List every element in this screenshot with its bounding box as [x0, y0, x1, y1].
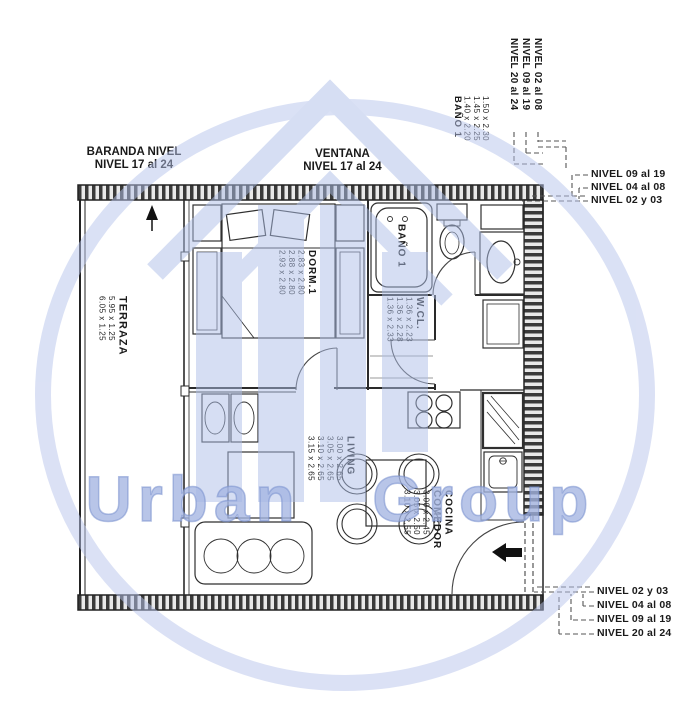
bathroom-fixtures [371, 203, 524, 294]
room-dim: 2.88 x 2.80 [286, 250, 295, 345]
baranda-line2: NIVEL 17 al 24 [78, 159, 190, 172]
room-dim: 3.05 x 2.50 [411, 490, 420, 602]
level-ref-bottom-4: NIVEL 20 al 24 [597, 627, 671, 639]
armchair-left [202, 394, 229, 442]
living-label: LIVING 3.00 x 2.65 3.05 x 2.65 3.10 x 2.… [306, 436, 355, 541]
level-ref-right-3: NIVEL 02 y 03 [591, 194, 662, 206]
room-dim: 1.50 x 2.30 [481, 96, 490, 191]
room-dim: 3.10 x 2.65 [315, 436, 324, 541]
nightstand-right [336, 205, 364, 241]
level-ref-top-3: NIVEL 02 al 08 [532, 38, 543, 133]
bathroom-shelf [481, 205, 523, 229]
kitchen-sink [484, 452, 522, 492]
kitchen-cabinet [483, 300, 523, 348]
level-ref-bottom-2: NIVEL 04 al 08 [597, 599, 671, 611]
dorm1-label: DORM.1 2.83 x 2.80 2.88 x 2.80 2.93 x 2.… [277, 250, 317, 345]
bano1-tub-label: BAÑO 1 [395, 224, 407, 288]
room-dim: 1.36 x 2.28 [394, 297, 403, 387]
room-name-line1: COCINA [442, 490, 454, 602]
armchair-right [231, 394, 258, 442]
room-dim: 3.00 x 2.45 [421, 490, 430, 602]
bano1-callout-label: BAÑO 1 1.40 x 2.20 1.45 x 2.25 1.50 x 2.… [451, 96, 490, 191]
level-ref-top-2: NIVEL 09 al 19 [520, 38, 531, 133]
room-name: BAÑO 1 [395, 224, 407, 288]
refrigerator [483, 393, 523, 448]
room-name: TERRAZA [116, 296, 129, 431]
room-dim: 2.83 x 2.80 [296, 250, 305, 345]
room-dim: 6.05 x 1.25 [97, 296, 106, 431]
room-name-line2: COMEDOR [430, 490, 442, 602]
room-dim: 3.00 x 2.65 [334, 436, 343, 541]
room-dim: 2.93 x 2.80 [277, 250, 286, 345]
room-name: DORM.1 [305, 250, 317, 345]
level-ref-bottom-3: NIVEL 09 al 19 [597, 613, 671, 625]
room-name: BAÑO 1 [451, 96, 462, 191]
coffee-table [228, 452, 294, 518]
ventana-label: VENTANA NIVEL 17 al 24 [290, 148, 395, 174]
toilet [437, 204, 467, 259]
level-ref-top-1: NIVEL 20 al 24 [508, 38, 519, 133]
room-dim: 1.36 x 2.23 [404, 297, 413, 387]
room-dim: 1.36 x 2.33 [385, 297, 394, 387]
room-dim: 1.40 x 2.20 [462, 96, 471, 191]
baranda-line1: BARANDA NIVEL [78, 146, 190, 159]
floor-plan-page: BARANDA NIVEL NIVEL 17 al 24 VENTANA NIV… [0, 0, 680, 712]
entry-arrow-icon [492, 543, 522, 562]
level-ref-right-2: NIVEL 04 al 08 [591, 181, 665, 193]
terraza-arrow-icon [146, 205, 158, 231]
room-dim: 3.05 x 2.65 [325, 436, 334, 541]
wcl-label: W.CL. 1.36 x 2.23 1.36 x 2.28 1.36 x 2.3… [385, 297, 425, 387]
room-dim: 3.10 x 2.55 [402, 490, 411, 602]
wardrobe-right [336, 248, 364, 338]
terraza-label: TERRAZA 5.95 x 1.25 6.05 x 1.25 [97, 296, 129, 431]
entry-door-arc [452, 522, 524, 594]
sofa [195, 522, 312, 584]
baranda-label: BARANDA NIVEL NIVEL 17 al 24 [78, 146, 190, 172]
wardrobe-left [193, 248, 221, 334]
ventana-line2: NIVEL 17 al 24 [290, 161, 395, 174]
room-name: LIVING [344, 436, 356, 541]
level-ref-right-1: NIVEL 09 al 19 [591, 168, 665, 180]
cocina-comedor-label: COCINA COMEDOR 3.00 x 2.45 3.05 x 2.50 3… [402, 490, 453, 602]
room-dim: 3.15 x 2.65 [306, 436, 315, 541]
room-name: W.CL. [413, 297, 425, 387]
ventana-line1: VENTANA [290, 148, 395, 161]
cooktop [408, 392, 460, 428]
room-dim: 5.95 x 1.25 [106, 296, 115, 431]
bathroom-sink [480, 232, 524, 294]
level-ref-bottom-1: NIVEL 02 y 03 [597, 585, 668, 597]
room-dim: 1.45 x 2.25 [471, 96, 480, 191]
nightstand-left [193, 205, 221, 241]
